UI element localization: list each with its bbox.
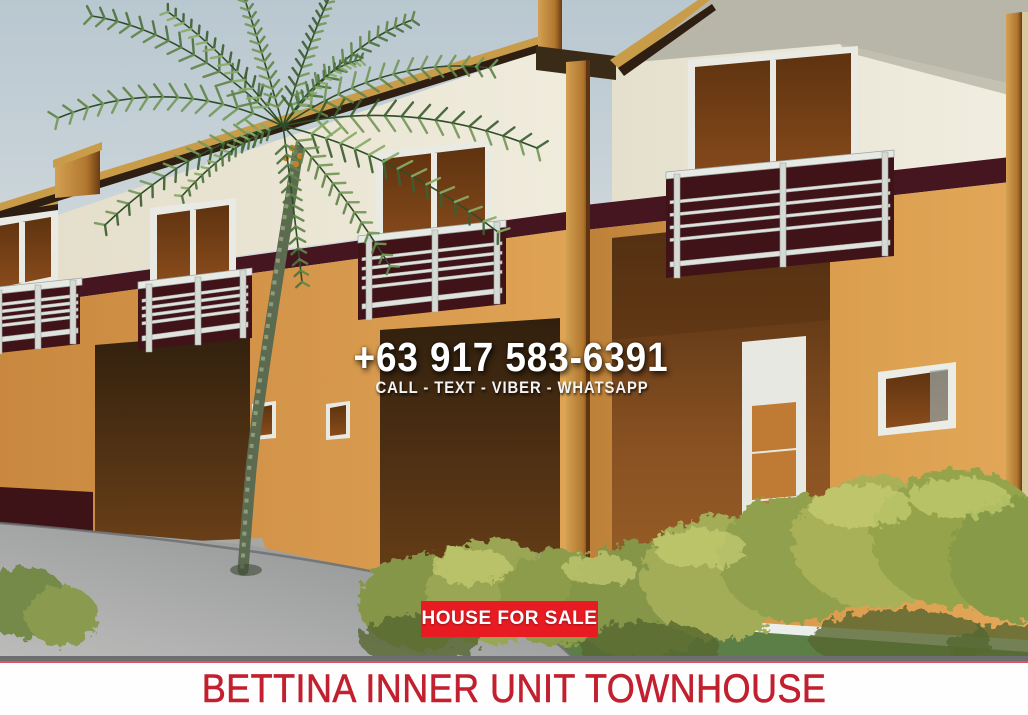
house-for-sale-badge: HOUSE FOR SALE [421,601,598,637]
phone-number: +63 917 583-6391 [353,334,668,381]
listing-image: +63 917 583-6391 CALL - TEXT - VIBER - W… [0,0,1028,715]
townhouse-render [0,0,1028,663]
footer-band: BETTINA INNER UNIT TOWNHOUSE [0,661,1028,715]
contact-methods: CALL - TEXT - VIBER - WHATSAPP [375,379,648,398]
footer-title: BETTINA INNER UNIT TOWNHOUSE [202,667,827,712]
